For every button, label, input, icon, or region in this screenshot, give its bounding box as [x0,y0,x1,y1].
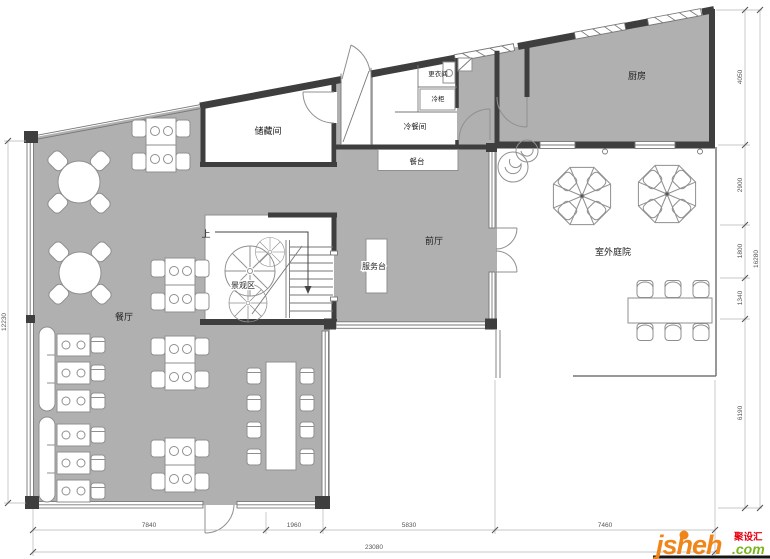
window-band-bottom-2 [237,502,321,509]
label-outdoor-courtyard: 室外庭院 [595,246,631,257]
stair-landscape-block [205,215,334,322]
booth-unit [39,327,105,412]
corner-block [324,319,336,330]
corner-block [315,496,330,509]
dim-value: 5830 [402,522,417,529]
door-jamb [331,297,338,301]
column-marker [698,149,703,154]
column-marker [603,149,608,154]
dim-value: 6190 [737,405,744,420]
floor-plan: 餐厅 厨房 储藏间 更衣间 冷柜 冷餐间 餐台 前厅 服务台 景观区 室外庭院 … [0,0,770,559]
kitchen-window-2 [635,142,675,149]
window-band-front-hall-south [336,322,487,329]
dim-right-total: 16280 [753,7,763,511]
label-changing-room: 更衣间 [428,69,448,78]
dim-value: 2900 [737,177,744,192]
mullion-block [26,315,35,323]
label-landscape-area: 景观区 [231,281,255,290]
corner-block [485,319,497,330]
door-jamb [331,251,338,255]
kitchen-window-1 [540,142,575,149]
dim-bottom-total: 23080 [30,544,718,555]
corner-block [486,143,497,152]
label-service-desk: 服务台 [362,261,386,271]
dim-right-segments: 4050 2900 1800 1340 6190 [737,7,748,511]
courtyard-double-door [496,228,517,272]
label-stairs-up: 上 [201,229,210,239]
dim-left-total: 12230 [1,138,11,506]
south-entrance-door [205,505,234,533]
label-kitchen: 厨房 [628,70,646,81]
label-cold-cabinet: 冷柜 [432,94,446,103]
dim-value: 12230 [1,313,8,331]
courtyard-long-table [628,281,712,341]
dim-value: 7840 [142,522,157,529]
umbrella-table [553,167,610,224]
corner-block [25,496,39,509]
label-cold-food-room: 冷餐间 [404,121,427,131]
dim-value: 16280 [753,250,760,268]
label-dining-hall: 餐厅 [115,311,133,322]
label-buffet-counter: 餐台 [410,156,425,166]
watermark: jsheh 聚设汇 .com [653,530,770,559]
dim-value: 1960 [287,522,302,529]
corner-block [24,131,38,143]
booth-unit [39,417,105,502]
dim-value: 4050 [737,69,744,84]
dim-value: 1800 [737,243,744,258]
label-front-hall: 前厅 [425,235,443,246]
dim-value: 7460 [598,522,613,529]
dim-value: 1340 [737,290,744,305]
window-band-dining-east [322,331,329,498]
umbrella-table [638,165,695,222]
label-storage: 储藏间 [254,125,281,136]
watermark-brand: jsheh [653,530,722,559]
dim-value: 23080 [365,544,383,551]
courtyard-furniture [498,140,712,341]
watermark-tld: .com [732,541,765,557]
dim-bottom-segments: 7840 1960 5830 7460 [30,522,718,533]
